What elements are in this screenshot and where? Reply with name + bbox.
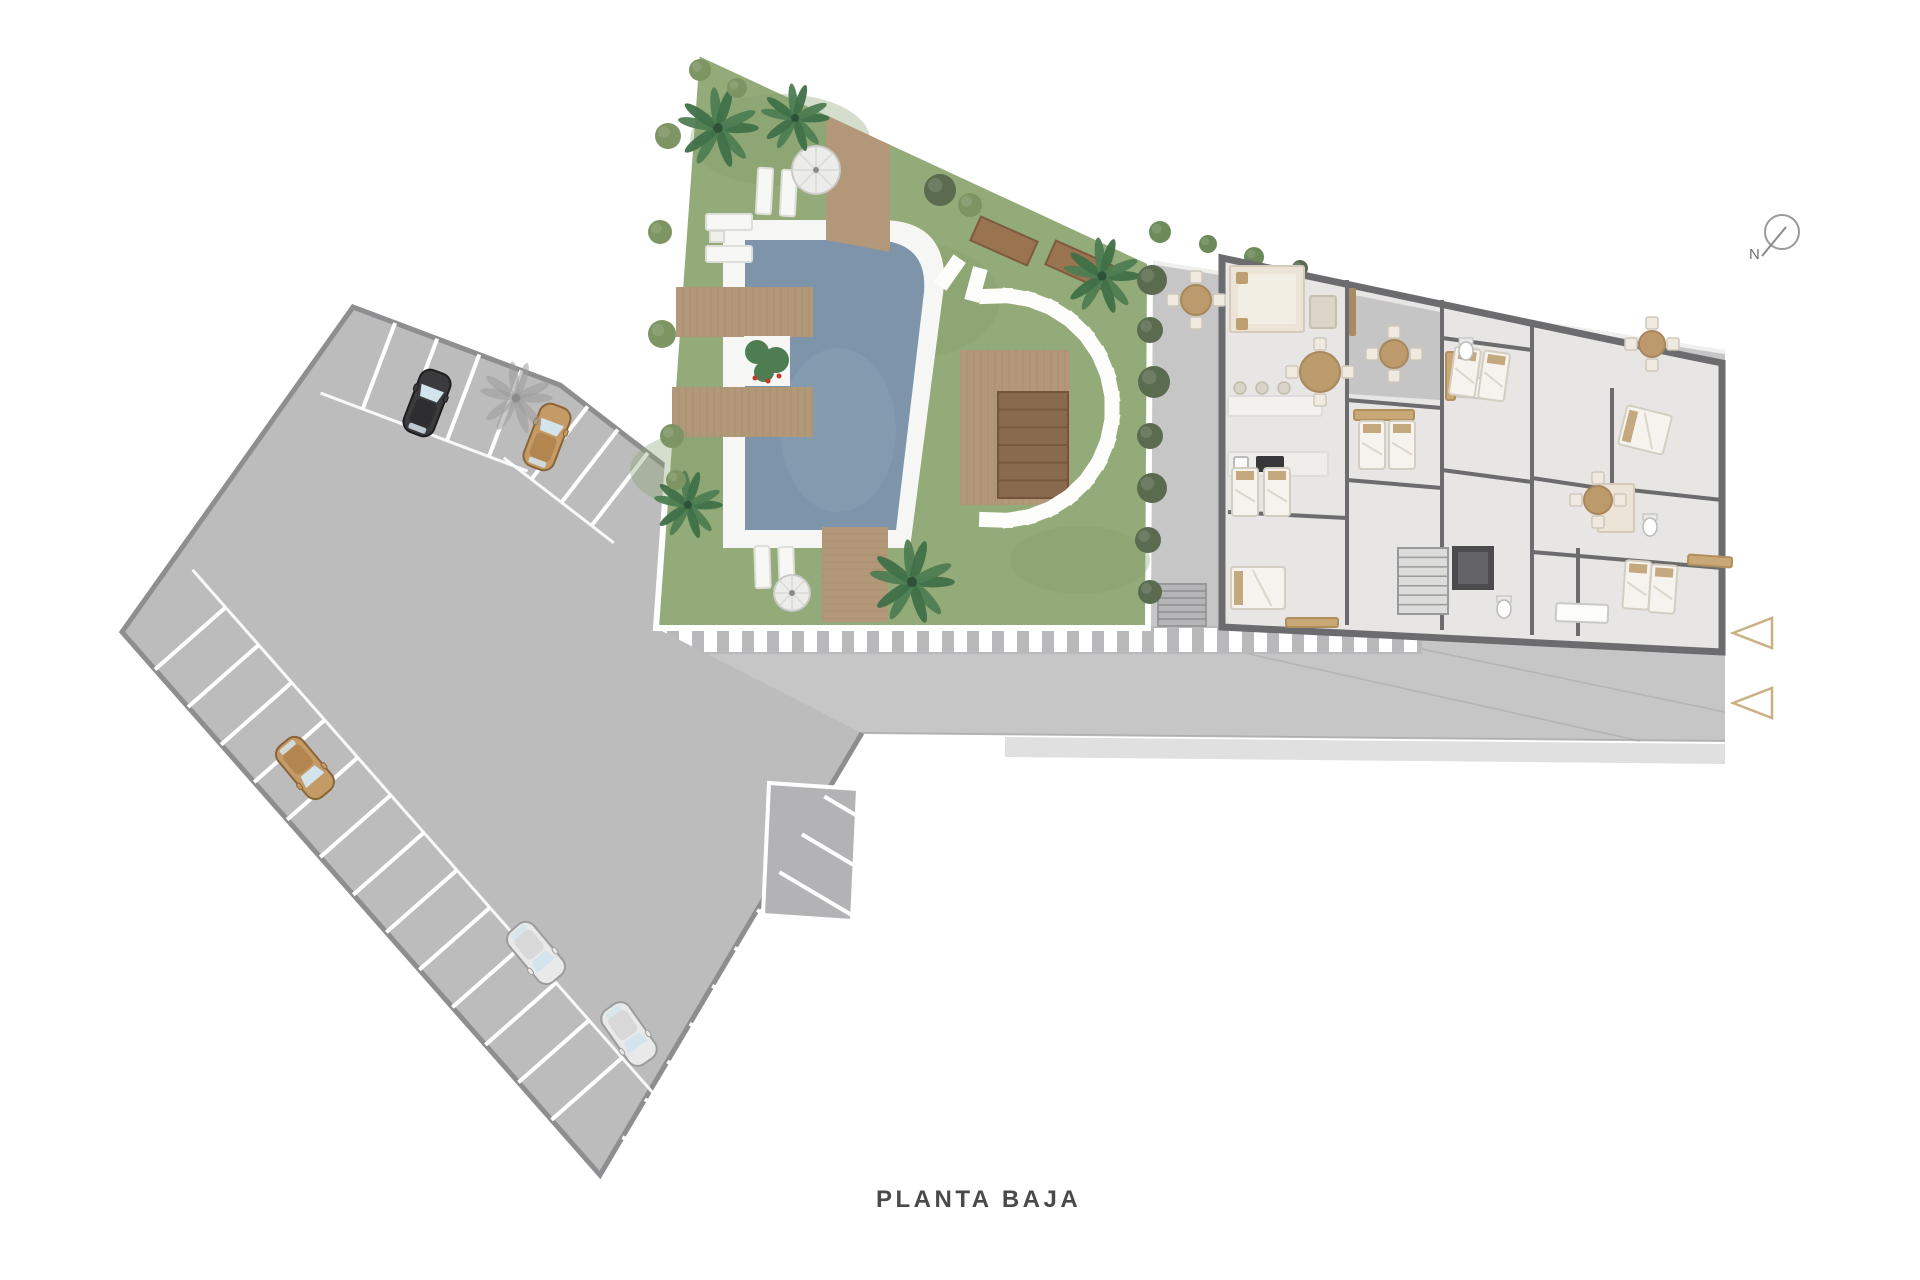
chair — [1592, 472, 1604, 484]
table-top — [1584, 486, 1612, 514]
toilet — [1459, 342, 1473, 360]
bed-pillow — [1363, 424, 1381, 433]
planter-flower — [766, 379, 771, 384]
palm-trunk — [907, 577, 917, 587]
bush-highlight — [652, 324, 665, 337]
planter-flower — [753, 376, 758, 381]
bed-pillow — [1236, 471, 1254, 480]
parasol-pole — [789, 590, 795, 596]
crosswalk-stripe — [879, 628, 892, 652]
bush-highlight — [1142, 370, 1156, 384]
kitchen-bar — [1228, 396, 1322, 416]
closet — [1688, 554, 1733, 567]
single-bed — [1478, 350, 1510, 401]
floor-title: PLANTA BAJA — [876, 1186, 1081, 1214]
crosswalk-stripe — [929, 628, 942, 652]
bush-highlight — [651, 223, 662, 234]
bed-pillow — [1655, 567, 1674, 577]
reserved-stall — [763, 783, 858, 921]
entrance-arrows — [1733, 618, 1772, 718]
closet — [1354, 410, 1414, 420]
parasol-pole — [813, 167, 819, 173]
bush-highlight — [730, 81, 739, 90]
crosswalk-stripe — [1229, 628, 1242, 652]
crosswalk-stripe — [754, 628, 767, 652]
bush-highlight — [1201, 237, 1209, 245]
chair — [1388, 326, 1400, 338]
single-bed — [1648, 564, 1677, 614]
bush-highlight — [1138, 530, 1150, 542]
crosswalk-stripe — [1054, 628, 1067, 652]
table-top — [1380, 340, 1408, 368]
sun-lounger — [754, 546, 770, 588]
compass-icon — [1762, 215, 1799, 256]
bush-highlight — [1247, 250, 1256, 259]
chair — [1342, 366, 1354, 378]
crosswalk-stripe — [1129, 628, 1142, 652]
chair — [1213, 294, 1225, 306]
bed-pillow — [1234, 571, 1243, 605]
chair — [1646, 359, 1658, 371]
crosswalk-stripe — [729, 628, 742, 652]
chair — [1592, 516, 1604, 528]
bed-pillow — [1629, 563, 1648, 573]
toilet — [1643, 518, 1657, 536]
crosswalk-stripe — [979, 628, 992, 652]
coffee-table — [1310, 296, 1336, 328]
sun-lounger — [706, 214, 752, 230]
crosswalk-stripe — [1204, 628, 1217, 652]
bar-stool — [1234, 382, 1246, 394]
chair — [1314, 338, 1326, 350]
palm-trunk — [512, 394, 521, 403]
bush-highlight — [1141, 583, 1152, 594]
bush-highlight — [658, 126, 670, 138]
crosswalk-stripe — [804, 628, 817, 652]
chair — [1625, 338, 1637, 350]
chair — [1314, 394, 1326, 406]
bed-pillow — [1268, 471, 1286, 480]
chair — [1614, 494, 1626, 506]
bush-highlight — [663, 427, 674, 438]
single-bed — [1264, 468, 1290, 516]
closet — [1286, 618, 1338, 627]
bar-stool — [1278, 382, 1290, 394]
crosswalk-stripe — [1079, 628, 1092, 652]
single-bed — [1232, 468, 1258, 516]
bush-highlight — [961, 196, 972, 207]
palm-trunk — [791, 114, 799, 122]
bathtub — [1556, 603, 1609, 623]
chair — [1190, 317, 1202, 329]
table-top — [1300, 352, 1340, 392]
single-bed — [1359, 421, 1385, 469]
crosswalk-stripe — [779, 628, 792, 652]
bush-highlight — [1152, 224, 1162, 234]
stepping-stone — [979, 512, 1014, 528]
entrance-arrow-icon — [1733, 618, 1772, 648]
chair — [1286, 366, 1298, 378]
bed-pillow — [1393, 424, 1411, 433]
chair — [1167, 294, 1179, 306]
sun-lounger — [756, 168, 773, 215]
palm-trunk — [1097, 271, 1106, 280]
crosswalk-stripe — [904, 628, 917, 652]
bush-highlight — [1141, 477, 1155, 491]
elevator-cab — [1458, 552, 1488, 584]
lounger-side-table — [710, 231, 724, 242]
chair — [1388, 370, 1400, 382]
crosswalk-stripe — [829, 628, 842, 652]
north-label: N — [1749, 246, 1761, 263]
site-plan — [0, 0, 1920, 1280]
chair — [1366, 348, 1378, 360]
sidewalk — [1005, 737, 1725, 764]
crosswalk-stripe — [854, 628, 867, 652]
bush-highlight — [692, 62, 702, 72]
crosswalk-stripe — [1104, 628, 1117, 652]
floor-plan-canvas: PLANTA BAJA N — [0, 0, 1920, 1280]
crosswalk-stripe — [954, 628, 967, 652]
crosswalk-stripe — [1179, 628, 1192, 652]
table-top — [1181, 285, 1211, 315]
bush-highlight — [1140, 426, 1152, 438]
chair — [1570, 494, 1582, 506]
crosswalk-stripe — [704, 628, 717, 652]
sofa-pillow — [1236, 272, 1248, 284]
chair — [1410, 348, 1422, 360]
planter-flower — [777, 374, 782, 379]
single-bed — [1622, 560, 1651, 610]
grass-patch — [1010, 526, 1150, 594]
single-bed — [1389, 421, 1415, 469]
toilet — [1497, 600, 1511, 618]
palm-trunk — [684, 501, 692, 509]
bush-highlight — [928, 178, 942, 192]
double-bed — [1231, 567, 1285, 609]
building-layer — [1167, 258, 1732, 652]
table-top — [1639, 331, 1665, 357]
crosswalk-stripe — [1029, 628, 1042, 652]
sofa-pillow — [1236, 318, 1248, 330]
chair — [1190, 271, 1202, 283]
bar-stool — [1256, 382, 1268, 394]
crosswalk-stripe — [1004, 628, 1017, 652]
tv-bench — [1349, 288, 1356, 336]
bush-highlight — [1141, 269, 1155, 283]
sun-lounger — [706, 246, 752, 262]
palm-trunk — [713, 123, 723, 133]
bush-highlight — [669, 473, 678, 482]
crosswalk-stripe — [1154, 628, 1167, 652]
chair — [1646, 317, 1658, 329]
bush-highlight — [1140, 320, 1152, 332]
chair — [1667, 338, 1679, 350]
entrance-arrow-icon — [1733, 688, 1772, 718]
